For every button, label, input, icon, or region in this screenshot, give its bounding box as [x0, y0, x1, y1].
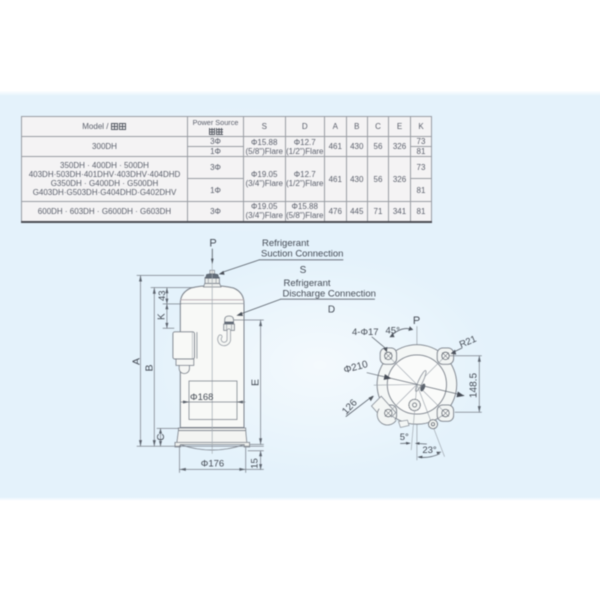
svg-text:Φ176: Φ176 [201, 459, 224, 470]
svg-text:K: K [156, 313, 167, 320]
svg-text:15: 15 [250, 458, 261, 469]
svg-text:B: B [144, 364, 156, 371]
svg-text:C: C [156, 433, 167, 440]
svg-text:Discharge Connection: Discharge Connection [283, 289, 376, 300]
svg-text:126: 126 [340, 397, 360, 417]
svg-text:43: 43 [157, 290, 168, 301]
svg-text:Refrigerant: Refrigerant [284, 278, 331, 289]
svg-text:5°: 5° [400, 432, 409, 443]
svg-text:S: S [300, 265, 307, 276]
svg-text:23°: 23° [422, 445, 437, 456]
svg-text:Φ168: Φ168 [190, 392, 213, 403]
svg-text:D: D [328, 305, 335, 316]
svg-text:Φ210: Φ210 [343, 359, 370, 376]
svg-text:A: A [131, 358, 143, 365]
svg-text:P: P [413, 315, 420, 327]
svg-text:E: E [250, 379, 262, 386]
svg-text:4-Φ17: 4-Φ17 [352, 327, 379, 338]
svg-text:148.5: 148.5 [469, 373, 480, 398]
svg-text:P: P [209, 238, 216, 250]
svg-text:Suction Connection: Suction Connection [261, 249, 343, 260]
svg-text:Refrigerant: Refrigerant [262, 238, 309, 249]
